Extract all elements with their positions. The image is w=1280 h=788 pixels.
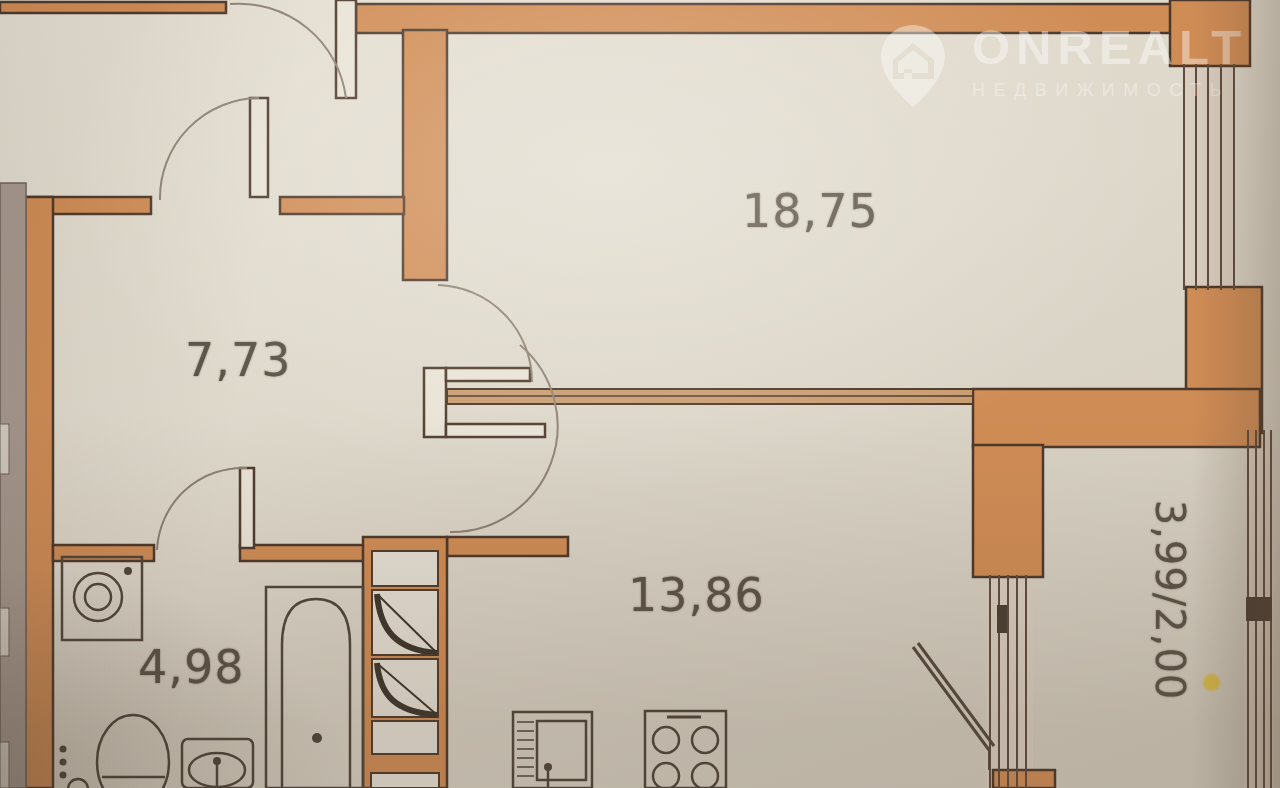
watermark-text: ONREALT НЕДВИЖИМОСТЬ <box>972 22 1247 101</box>
yellow-marker-dot <box>1203 674 1220 691</box>
door-leaves <box>240 0 356 548</box>
room-label-balcony: 3,99/2,00 <box>1147 500 1193 701</box>
bathroom-sink-icon <box>182 739 253 788</box>
stove-icon <box>645 711 726 788</box>
toilet-icon <box>97 715 169 788</box>
room-label-living-room: 18,75 <box>742 184 879 238</box>
ventilation-shaft <box>371 551 439 788</box>
room-label-bathroom: 4,98 <box>138 640 244 694</box>
adjacent-structure <box>0 183 26 788</box>
washing-machine-icon <box>62 557 142 640</box>
watermark-brand: ONREALT <box>972 22 1247 73</box>
towel-rail-icon <box>60 746 89 788</box>
watermark: ONREALT НЕДВИЖИМОСТЬ <box>876 22 1247 110</box>
floor-plan-photo: 18,75 7,73 13,86 4,98 3,99/2,00 ONREALT … <box>0 0 1280 788</box>
bathtub-icon <box>266 587 363 788</box>
watermark-tagline: НЕДВИЖИМОСТЬ <box>972 80 1247 101</box>
room-label-hallway: 7,73 <box>185 333 291 387</box>
door-swing-arcs <box>157 4 558 550</box>
floor-plan: 18,75 7,73 13,86 4,98 3,99/2,00 <box>0 0 1280 788</box>
thin-partition-wall <box>447 389 973 404</box>
onrealt-pin-icon <box>876 22 950 110</box>
balcony-door-leaf <box>913 643 994 770</box>
kitchen-sink-icon <box>513 712 592 788</box>
room-label-kitchen: 13,86 <box>628 568 765 622</box>
